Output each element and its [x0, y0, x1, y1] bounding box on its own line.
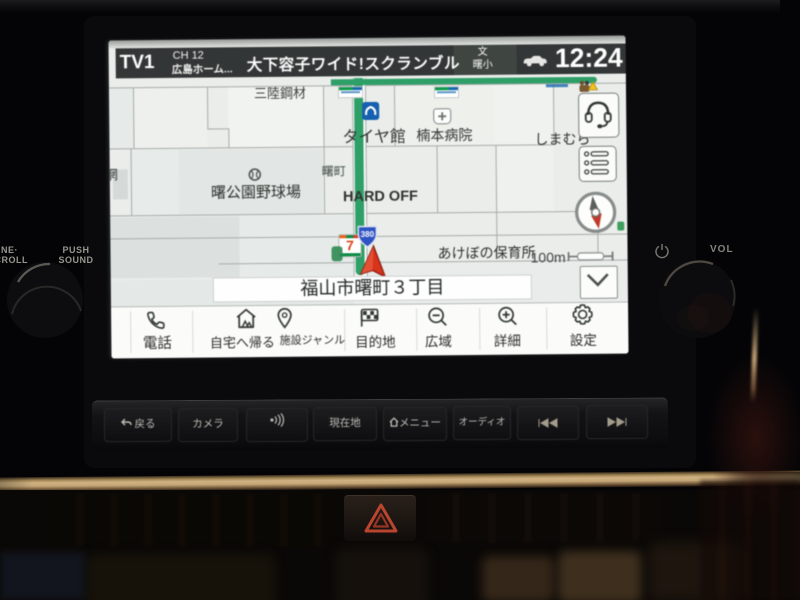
svg-text:380: 380: [361, 230, 375, 239]
